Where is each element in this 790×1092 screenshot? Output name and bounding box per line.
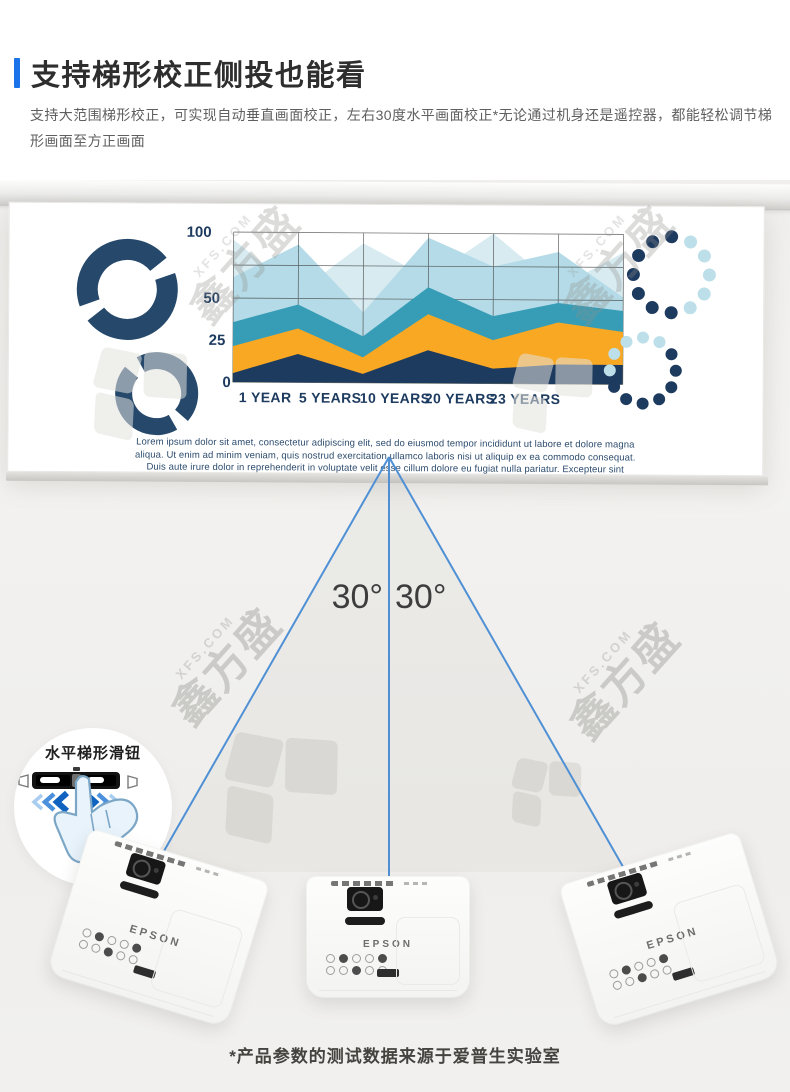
- feature-illustration: 025501001 YEAR5 YEARS10 YEARS20 YEARS23 …: [0, 180, 790, 1092]
- y-axis-tick: 100: [187, 224, 212, 241]
- vent-strip: [404, 882, 427, 885]
- feature-description: 支持大范围梯形校正，可实现自动垂直画面校正，左右30度水平画面校正*无论通过机身…: [30, 102, 774, 154]
- y-axis-tick: 50: [203, 290, 220, 307]
- x-axis-label: 5 YEARS: [299, 389, 362, 405]
- right-angle-label: 30°: [395, 578, 446, 617]
- lamp-door-seam: [396, 917, 460, 985]
- projector-lens: [347, 887, 383, 911]
- ring-icon-large: [76, 238, 179, 341]
- watermark-site: XFS.COM: [544, 597, 662, 726]
- angle-labels: 30° 30°: [289, 578, 489, 617]
- watermark: XFS.COM 鑫方盛: [146, 583, 298, 743]
- x-axis-label: 23 YEARS: [490, 391, 561, 407]
- dotted-circle-upper: [627, 230, 717, 320]
- vent-strip: [668, 851, 694, 862]
- vent-strip: [331, 881, 397, 886]
- title-accent-bar: [14, 58, 20, 88]
- product-detail-page: 支持梯形校正侧投也能看 支持大范围梯形校正，可实现自动垂直画面校正，左右30度水…: [0, 0, 790, 1092]
- projector-right: EPSON: [558, 831, 782, 1029]
- x-axis-label: 1 YEAR: [239, 389, 292, 405]
- ring-icon-small: [111, 348, 202, 439]
- x-axis-label: 10 YEARS: [360, 390, 431, 406]
- beam-line-right: [389, 457, 626, 872]
- title-row: 支持梯形校正侧投也能看: [14, 52, 367, 94]
- x-axis-label: 20 YEARS: [425, 390, 496, 406]
- screen-caption-text: Lorem ipsum dolor sit amet, consectetur …: [8, 436, 762, 478]
- watermark-brand: 鑫方盛: [555, 607, 696, 757]
- footer-note: *产品参数的测试数据来源于爱普生实验室: [0, 1042, 790, 1067]
- lamp-door-seam: [149, 907, 244, 1009]
- y-axis-tick: 25: [209, 332, 226, 349]
- focus-slider: [345, 917, 385, 925]
- projected-chart: 025501001 YEAR5 YEARS10 YEARS20 YEARS23 …: [8, 203, 764, 476]
- left-angle-label: 30°: [332, 578, 383, 617]
- y-axis-tick: 0: [222, 374, 230, 391]
- vent-strip: [196, 867, 222, 878]
- beam-area: [152, 457, 626, 872]
- page-title: 支持梯形校正侧投也能看: [31, 52, 367, 94]
- watermark-logo-icon: [508, 756, 586, 834]
- watermark-logo-icon: [220, 730, 345, 855]
- panel-seam: [319, 990, 457, 991]
- watermark: XFS.COM 鑫方盛: [544, 597, 696, 757]
- section-header: 支持梯形校正侧投也能看 支持大范围梯形校正，可实现自动垂直画面校正，左右30度水…: [0, 0, 790, 180]
- projection-screen: 025501001 YEAR5 YEARS10 YEARS20 YEARS23 …: [7, 202, 765, 477]
- watermark-site: XFS.COM: [146, 583, 264, 712]
- projector-center: EPSON: [306, 876, 470, 998]
- watermark-brand: 鑫方盛: [157, 593, 298, 743]
- beam-line-left: [152, 457, 389, 872]
